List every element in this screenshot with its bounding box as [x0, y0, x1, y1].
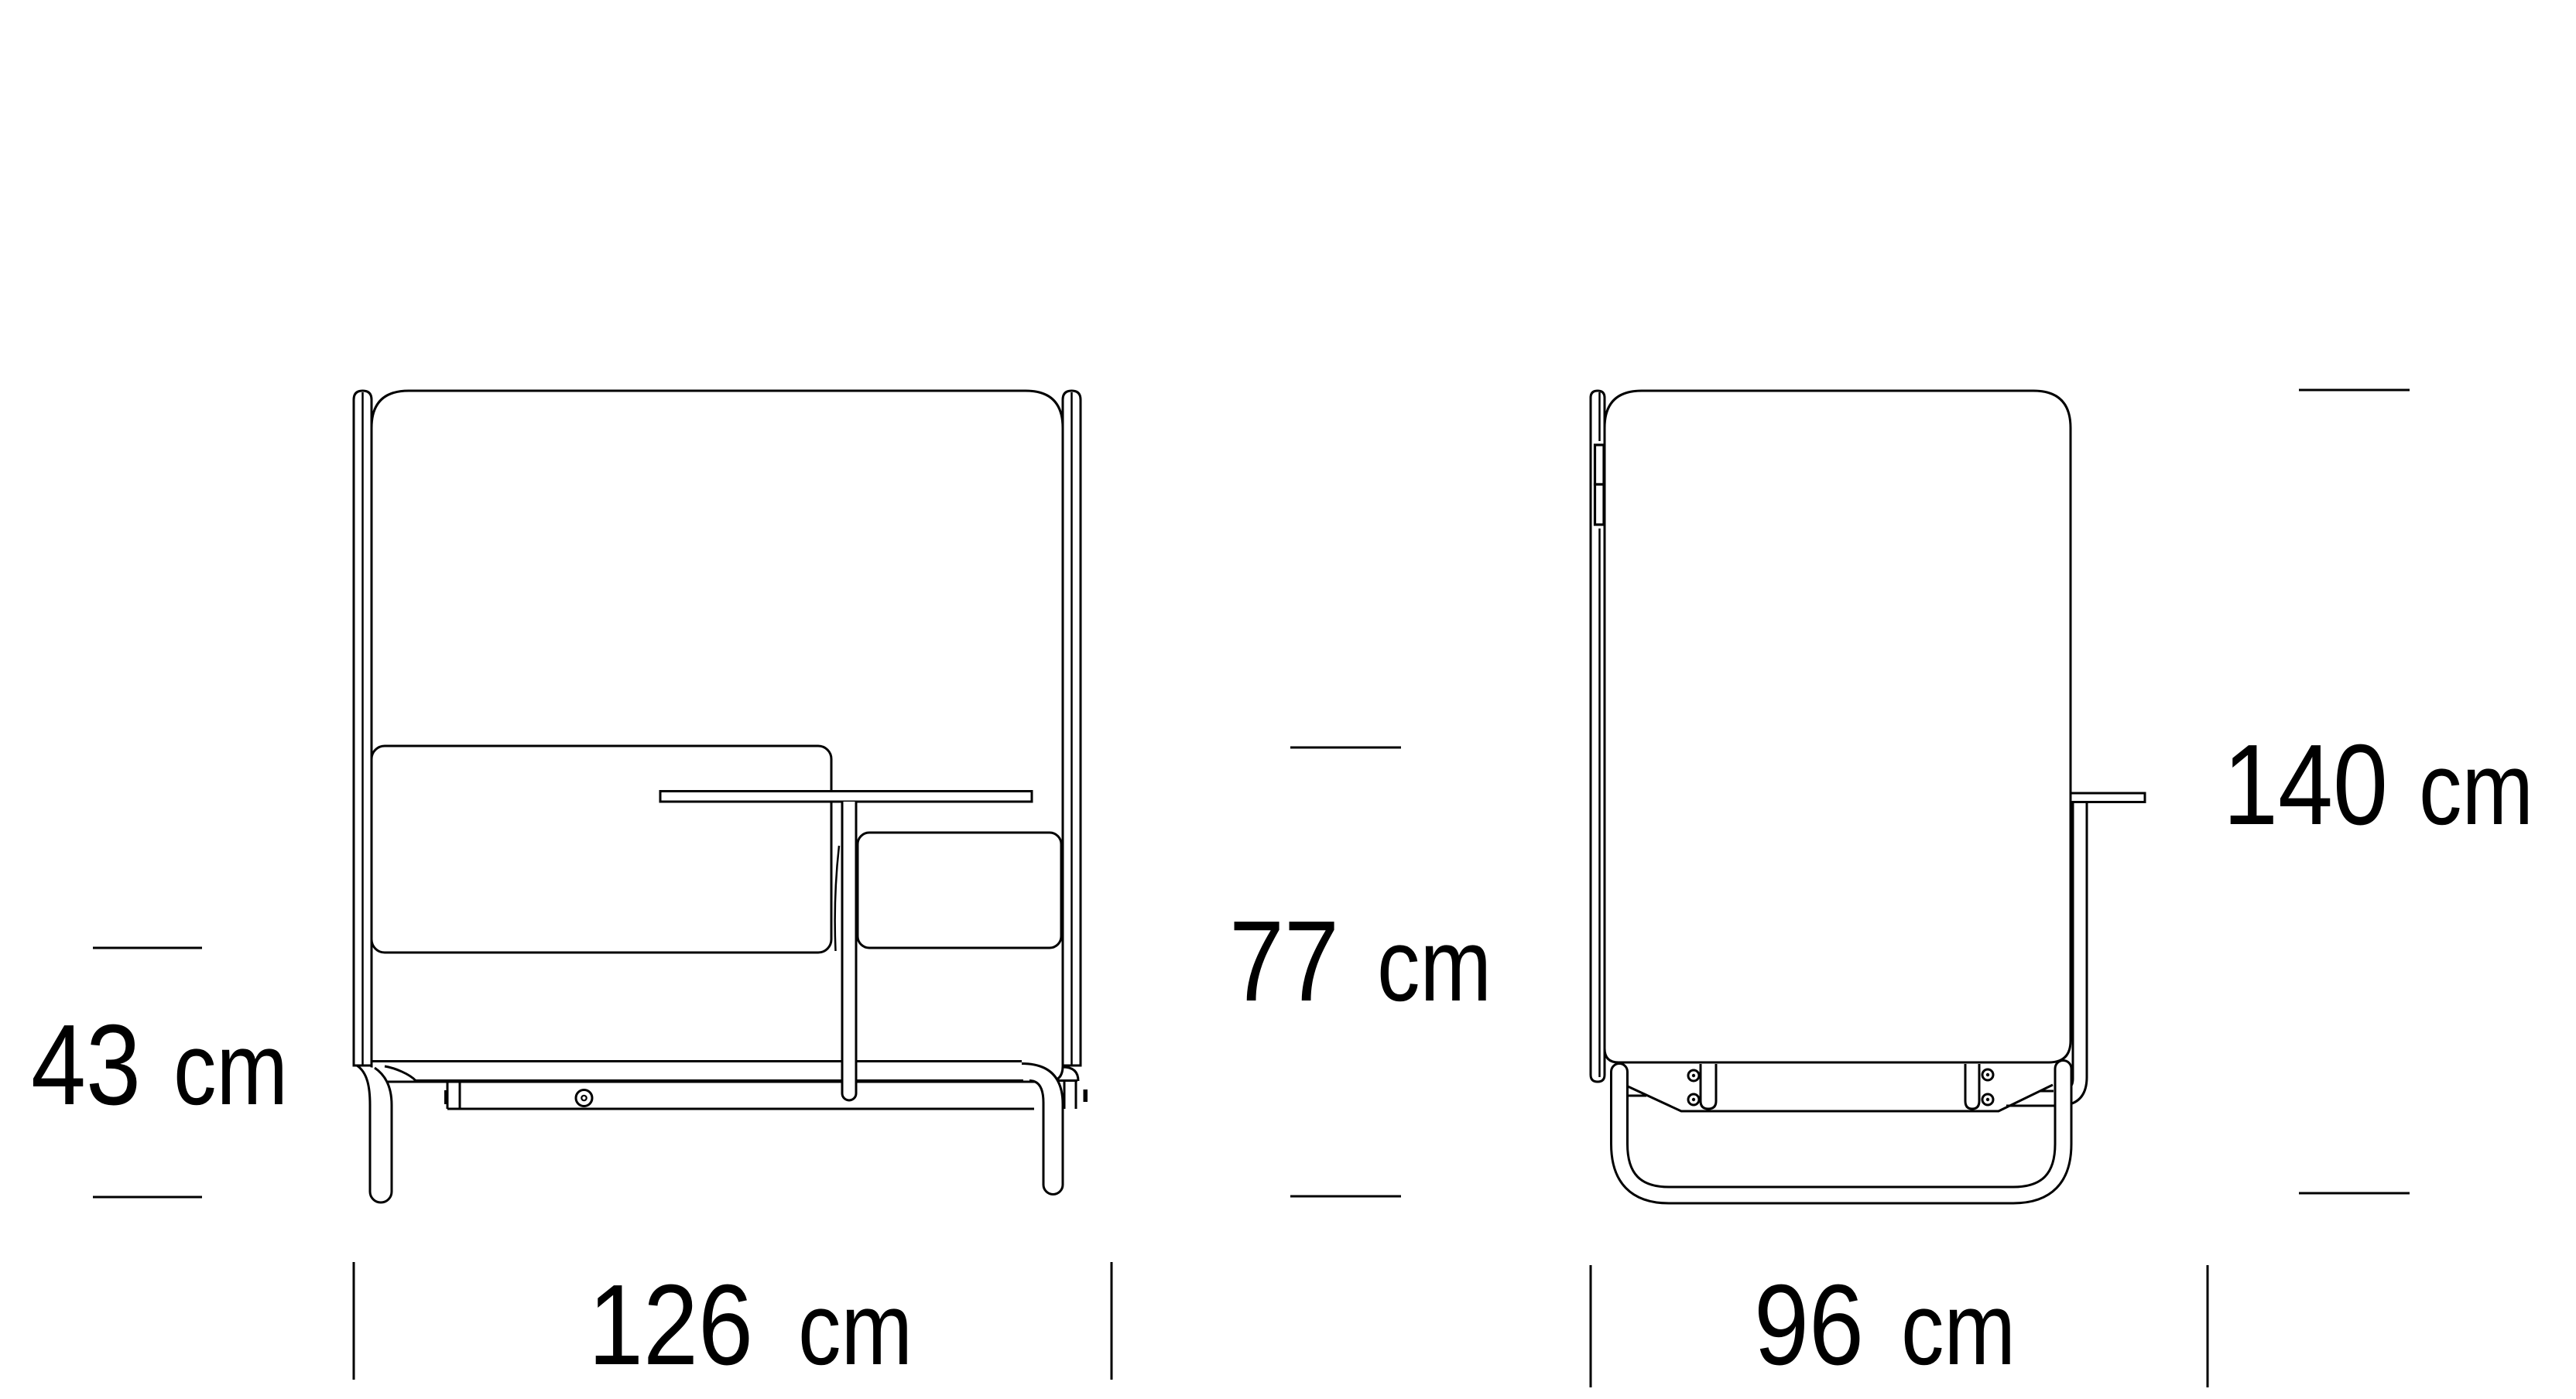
svg-text:cm: cm	[2419, 732, 2533, 847]
svg-text:43: 43	[31, 1001, 141, 1129]
svg-text:96: 96	[1754, 1261, 1864, 1389]
svg-text:cm: cm	[798, 1272, 913, 1387]
svg-text:140: 140	[2223, 721, 2388, 849]
svg-text:126: 126	[588, 1261, 753, 1389]
svg-text:77: 77	[1229, 898, 1339, 1025]
svg-text:cm: cm	[173, 1012, 288, 1127]
svg-text:cm: cm	[1377, 908, 1492, 1023]
svg-text:cm: cm	[1901, 1272, 2016, 1387]
